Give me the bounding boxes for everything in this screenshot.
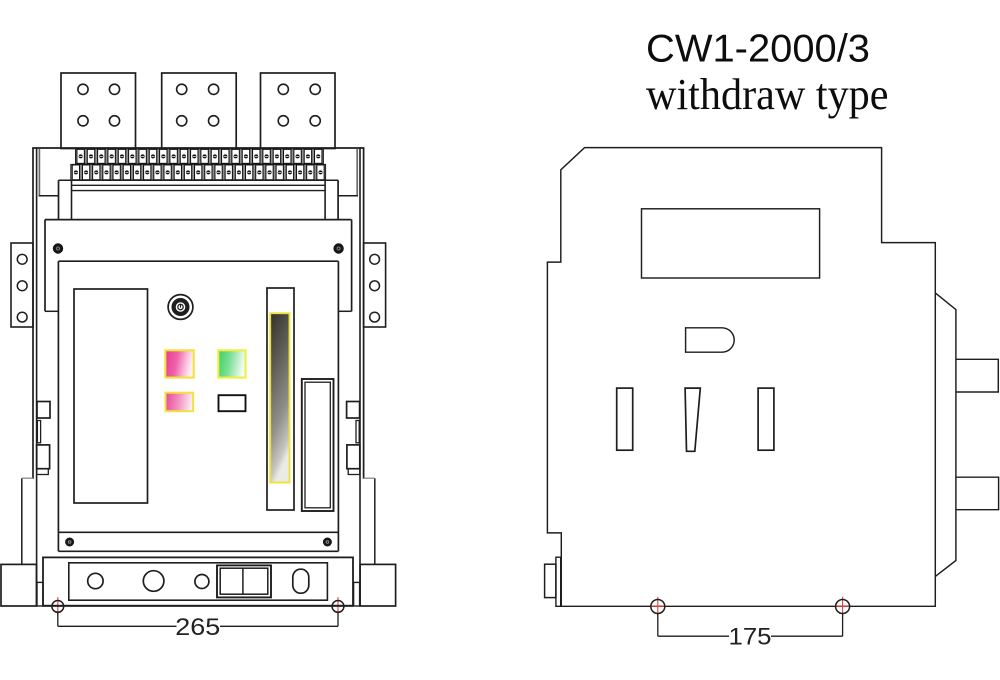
svg-text:withdraw type: withdraw type [646,70,889,119]
svg-text:175: 175 [729,624,772,650]
svg-text:CW1-2000/3: CW1-2000/3 [646,28,870,71]
svg-text:265: 265 [175,615,220,641]
